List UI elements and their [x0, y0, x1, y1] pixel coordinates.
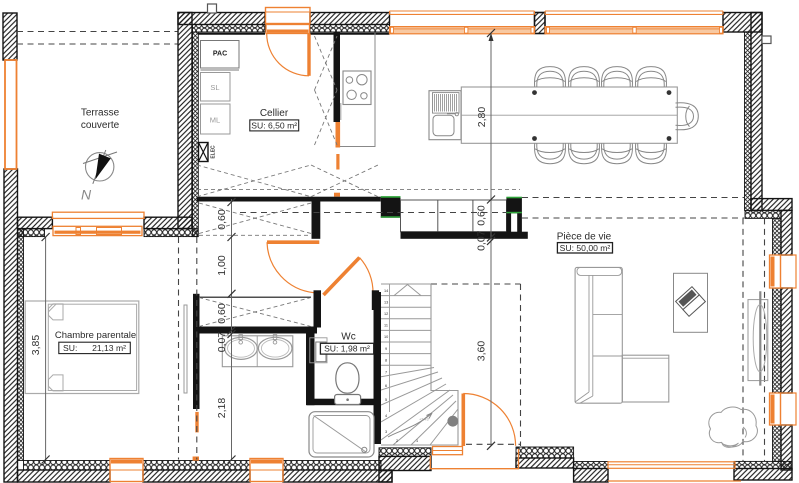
svg-text:9: 9 [385, 347, 387, 351]
svg-text:4: 4 [385, 414, 387, 418]
svg-text:2: 2 [396, 439, 398, 443]
svg-text:3,60: 3,60 [476, 341, 488, 362]
svg-text:0,60: 0,60 [476, 205, 488, 226]
svg-text:8: 8 [385, 359, 387, 363]
svg-text:+2,43: +2,43 [419, 418, 429, 422]
svg-text:2,80: 2,80 [476, 107, 488, 128]
svg-text:ML: ML [210, 116, 220, 125]
svg-text:SU: 50,00 m²: SU: 50,00 m² [560, 243, 611, 253]
svg-text:Terrasse: Terrasse [81, 108, 120, 119]
svg-text:0,07: 0,07 [216, 332, 228, 353]
svg-text:3,85: 3,85 [30, 335, 42, 356]
svg-text:13: 13 [384, 301, 388, 305]
svg-text:5: 5 [385, 398, 387, 402]
svg-text:1,00: 1,00 [216, 255, 228, 276]
svg-text:0,07: 0,07 [476, 230, 488, 251]
svg-text:3: 3 [385, 430, 387, 434]
svg-text:14: 14 [384, 289, 388, 293]
svg-text:couverte: couverte [81, 120, 120, 131]
svg-text:SL: SL [210, 83, 219, 92]
svg-text:Chambre parentale: Chambre parentale [55, 330, 136, 341]
svg-text:Cellier: Cellier [260, 108, 289, 119]
svg-text:21,13 m²: 21,13 m² [92, 343, 126, 353]
svg-text:N: N [81, 187, 92, 203]
svg-text:1: 1 [416, 439, 418, 443]
svg-text:0,60: 0,60 [216, 209, 228, 230]
svg-text:6: 6 [385, 384, 387, 388]
svg-text:SU: 1,98 m²: SU: 1,98 m² [324, 344, 370, 354]
svg-text:10: 10 [384, 335, 388, 339]
svg-text:ELEC: ELEC [211, 145, 217, 159]
svg-text:11: 11 [384, 324, 388, 328]
svg-text:PAC: PAC [213, 51, 227, 58]
svg-text:0,60: 0,60 [216, 303, 228, 324]
svg-text:2,18: 2,18 [216, 398, 228, 419]
svg-text:7: 7 [385, 371, 387, 375]
svg-text:Pièce de vie: Pièce de vie [557, 232, 612, 243]
svg-text:Wc: Wc [341, 332, 355, 343]
svg-text:SU: 6,50 m²: SU: 6,50 m² [251, 120, 297, 130]
svg-text:12: 12 [384, 312, 388, 316]
svg-text:SU:: SU: [63, 343, 77, 353]
